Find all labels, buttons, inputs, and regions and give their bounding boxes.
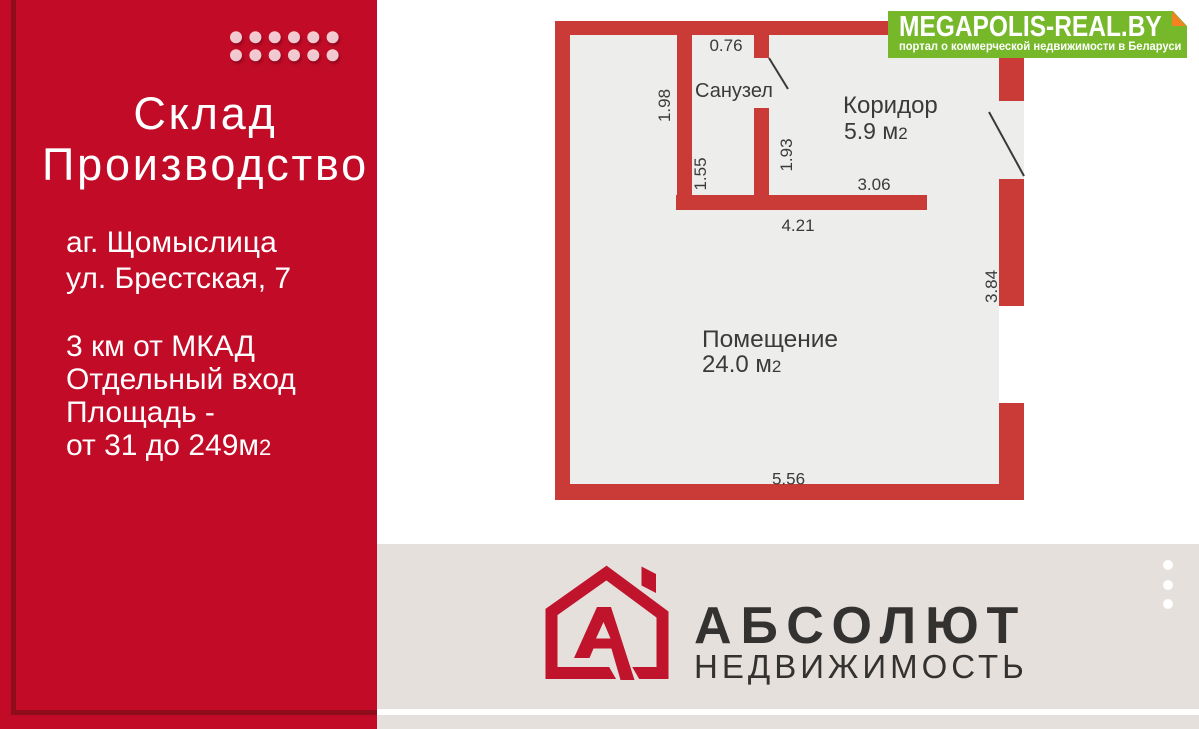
svg-text:1.55: 1.55 — [691, 157, 710, 190]
svg-text:Санузел: Санузел — [695, 80, 773, 102]
svg-text:24.0 м2: 24.0 м2 — [702, 351, 781, 378]
svg-text:4.21: 4.21 — [781, 216, 814, 235]
svg-text:Помещение: Помещение — [702, 326, 838, 353]
svg-text:Коридор: Коридор — [843, 92, 938, 119]
svg-text:3.84: 3.84 — [982, 270, 1001, 303]
svg-text:5.56: 5.56 — [772, 470, 805, 489]
svg-text:1.93: 1.93 — [777, 138, 796, 171]
svg-text:1.98: 1.98 — [655, 89, 674, 122]
svg-text:3.06: 3.06 — [857, 175, 890, 194]
svg-text:5.9 м2: 5.9 м2 — [844, 118, 908, 144]
svg-text:0.76: 0.76 — [709, 36, 742, 55]
